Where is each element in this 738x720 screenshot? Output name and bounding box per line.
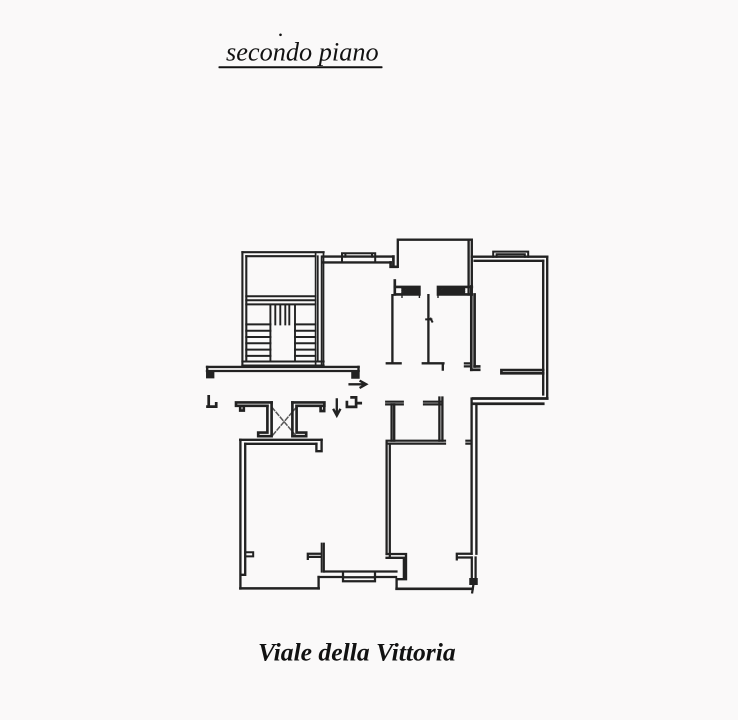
svg-text:secondo piano: secondo piano bbox=[226, 38, 379, 67]
svg-text:Viale della Vittoria: Viale della Vittoria bbox=[258, 638, 456, 667]
